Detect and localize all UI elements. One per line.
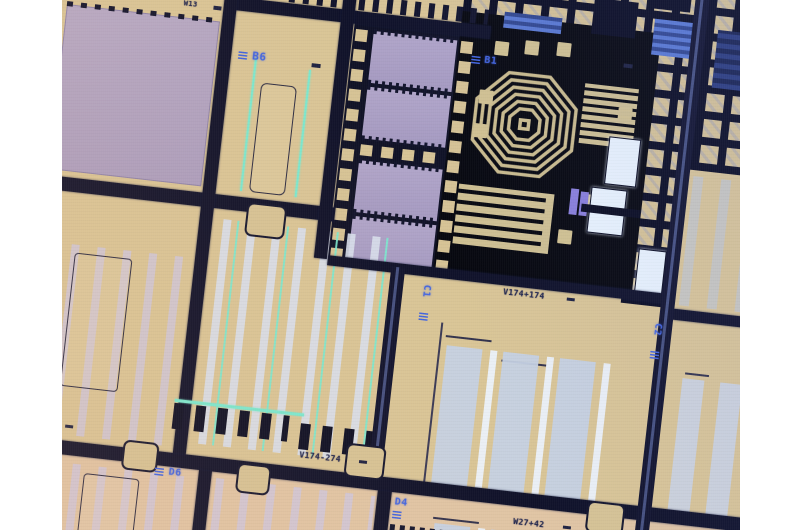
dark-block bbox=[591, 0, 639, 39]
probe-pad bbox=[557, 229, 572, 244]
street-tab bbox=[235, 462, 272, 496]
b6-gate-outline bbox=[249, 83, 297, 196]
white-margin-left bbox=[0, 0, 62, 530]
c1-finger-array bbox=[431, 345, 612, 501]
alignment-dash bbox=[311, 63, 320, 68]
white-margin-right bbox=[740, 0, 800, 530]
probe-pad bbox=[478, 89, 493, 104]
stripe-top-line bbox=[685, 372, 709, 377]
street-horizontal bbox=[673, 309, 740, 339]
ladder-structure bbox=[452, 184, 546, 254]
cell-label-d6: D6 bbox=[168, 467, 182, 479]
stripe-cell-right bbox=[679, 176, 740, 323]
cell-label-d4: D4 bbox=[394, 496, 408, 508]
cell-label-b1: B1 bbox=[484, 55, 498, 67]
probe-pad bbox=[494, 41, 509, 56]
interdigitated-capacitor bbox=[368, 31, 457, 92]
stack-icon bbox=[154, 467, 164, 476]
interdigitated-capacitor bbox=[353, 160, 442, 221]
alignment-dash bbox=[567, 298, 575, 302]
photo-canvas: W13 B6 B1 VS349 C1 V174+174 C2 103 D6 V1… bbox=[0, 0, 800, 530]
probe-pad bbox=[524, 40, 539, 55]
chip-photo: W13 B6 B1 VS349 C1 V174+174 C2 103 D6 V1… bbox=[62, 0, 740, 530]
stack-icon bbox=[471, 55, 481, 64]
probe-pad bbox=[473, 123, 488, 138]
cell-label-c2: C2 bbox=[651, 322, 663, 336]
stripe-top-line bbox=[446, 335, 492, 342]
stack-icon bbox=[392, 510, 402, 519]
white-metal-pad bbox=[604, 136, 641, 187]
street-tab bbox=[585, 500, 626, 530]
corner-mark-label: W13 bbox=[183, 0, 198, 9]
interdigitated-capacitor bbox=[362, 87, 451, 148]
stack-icon bbox=[418, 312, 428, 321]
stack-icon bbox=[238, 51, 248, 60]
c2-finger-array bbox=[668, 378, 740, 522]
alignment-dash bbox=[623, 63, 632, 68]
alignment-dash bbox=[213, 6, 221, 11]
mim-capacitor bbox=[62, 4, 220, 186]
chip-die: W13 B6 B1 VS349 C1 V174+174 C2 103 D6 V1… bbox=[62, 0, 740, 530]
device-outline bbox=[77, 473, 140, 530]
street-tab bbox=[244, 202, 288, 240]
probe-pad bbox=[556, 42, 571, 57]
cell-label-b6: B6 bbox=[252, 50, 267, 63]
stack-icon bbox=[650, 350, 660, 359]
cell-label-c1: C1 bbox=[420, 284, 432, 298]
b6-cyan-line bbox=[295, 70, 311, 197]
street-label-v174-plus: V174+174 bbox=[503, 288, 545, 301]
